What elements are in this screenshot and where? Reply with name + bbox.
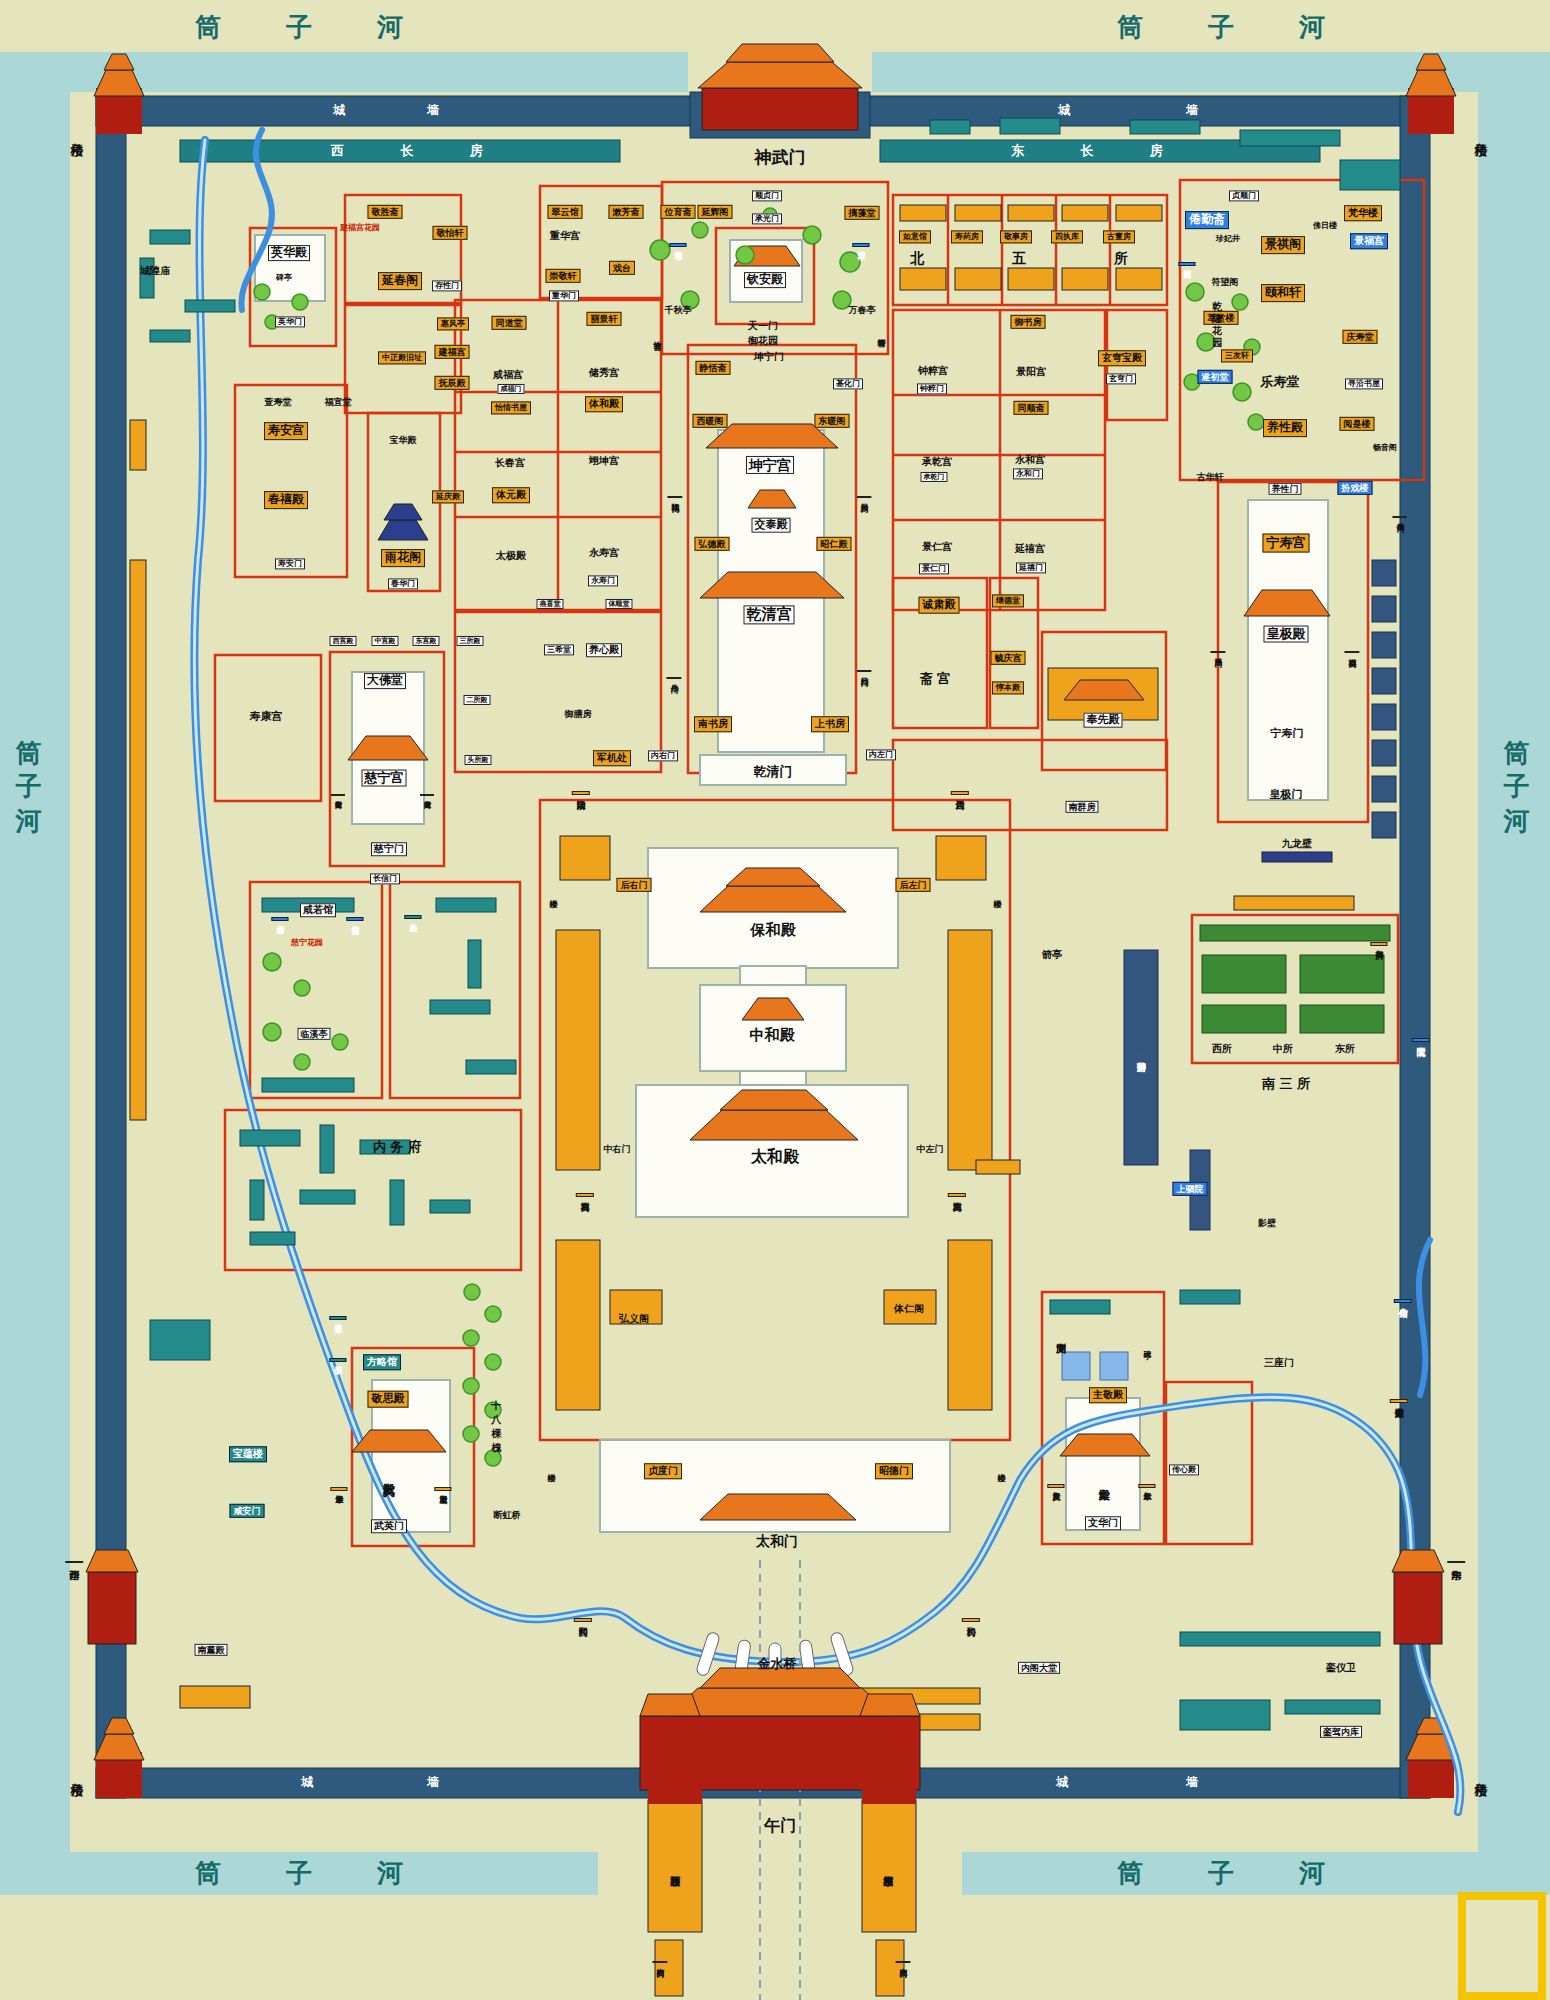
yuchashanfang-block	[1124, 950, 1158, 1165]
map-structure	[0, 0, 1550, 2000]
jiulongbi-icon	[1262, 852, 1332, 862]
taihemen-roof-icon	[700, 1494, 856, 1520]
donghuamen-gate-icon	[1392, 1550, 1444, 1644]
xihuamen-gate-icon	[86, 1550, 138, 1644]
map-canvas: 筒 子 河筒 子 河筒子河筒子河筒 子 河筒 子 河角楼角楼角楼角楼城墙城墙城墙…	[0, 0, 1550, 2000]
